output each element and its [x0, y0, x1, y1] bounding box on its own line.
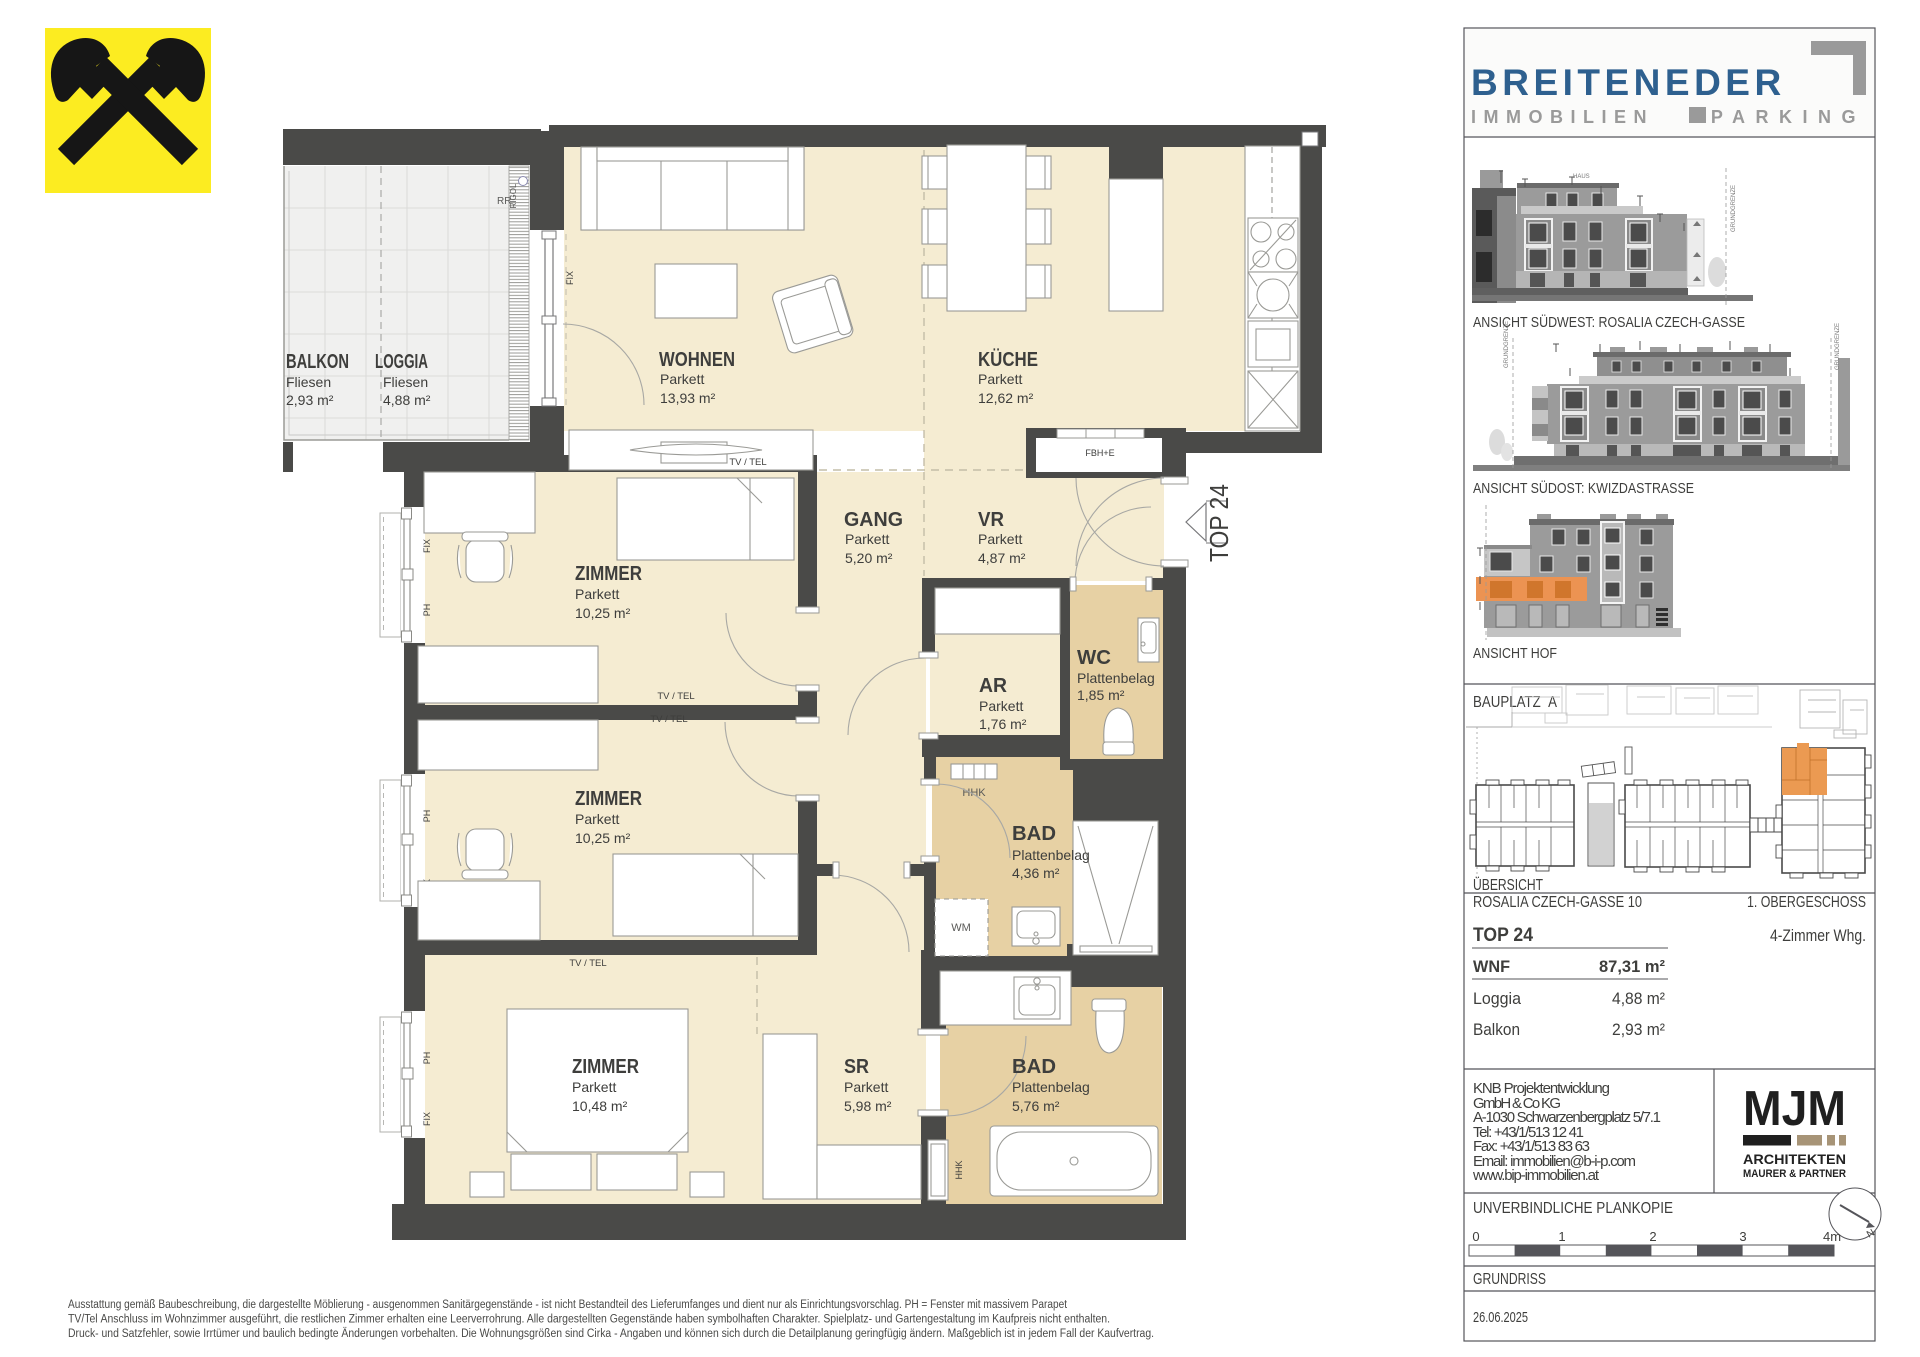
svg-text:FIX: FIX: [422, 1112, 432, 1126]
svg-text:Druck- und Satzfehler, sowie I: Druck- und Satzfehler, sowie Irrtümer un…: [68, 1328, 1154, 1340]
svg-text:5,76 m²: 5,76 m²: [1012, 1098, 1060, 1114]
svg-text:GRUNDGRENZE: GRUNDGRENZE: [1504, 321, 1510, 368]
svg-text:Plattenbelag: Plattenbelag: [1012, 1079, 1090, 1095]
svg-text:WC: WC: [1077, 647, 1111, 669]
svg-text:4m: 4m: [1823, 1229, 1841, 1244]
svg-text:TOP 24: TOP 24: [1204, 484, 1234, 562]
svg-text:ÜBERSICHT: ÜBERSICHT: [1473, 876, 1543, 894]
svg-text:ZIMMER: ZIMMER: [575, 788, 642, 810]
svg-text:Parkett: Parkett: [660, 371, 704, 387]
svg-text:GANG: GANG: [844, 509, 903, 531]
svg-text:1,85 m²: 1,85 m²: [1077, 687, 1125, 703]
svg-text:MAURER & PARTNER: MAURER & PARTNER: [1743, 1168, 1846, 1180]
svg-text:Parkett: Parkett: [845, 531, 889, 547]
svg-text:PH: PH: [422, 1052, 432, 1065]
svg-text:WNF: WNF: [1473, 957, 1510, 976]
svg-text:BREITENEDER: BREITENEDER: [1471, 62, 1786, 103]
svg-text:HAUS: HAUS: [1573, 174, 1590, 180]
svg-text:4,36 m²: 4,36 m²: [1012, 865, 1060, 881]
svg-text:TV / TEL: TV / TEL: [657, 691, 694, 702]
svg-text:BAD: BAD: [1012, 1056, 1056, 1078]
svg-text:Parkett: Parkett: [978, 531, 1022, 547]
svg-text:FBH+E: FBH+E: [1085, 448, 1114, 458]
svg-text:SR: SR: [844, 1056, 869, 1078]
svg-text:5,20 m²: 5,20 m²: [845, 550, 893, 566]
svg-text:TV / TEL: TV / TEL: [729, 457, 766, 468]
svg-text:13,93 m²: 13,93 m²: [660, 390, 716, 406]
svg-text:RR: RR: [497, 196, 511, 207]
svg-text:VR: VR: [978, 509, 1005, 531]
svg-text:3: 3: [1739, 1229, 1746, 1244]
svg-text:12,62 m²: 12,62 m²: [978, 390, 1034, 406]
svg-text:FIX: FIX: [565, 271, 575, 285]
svg-text:MJM: MJM: [1743, 1082, 1846, 1136]
svg-text:Parkett: Parkett: [978, 371, 1022, 387]
svg-text:10,48 m²: 10,48 m²: [572, 1098, 628, 1114]
svg-text:GRUNDGRENZE: GRUNDGRENZE: [1731, 185, 1737, 232]
svg-text:Plattenbelag: Plattenbelag: [1077, 670, 1155, 686]
svg-text:1. OBERGESCHOSS: 1. OBERGESCHOSS: [1747, 894, 1866, 911]
svg-text:Parkett: Parkett: [572, 1079, 616, 1095]
svg-text:PH: PH: [422, 810, 432, 823]
svg-text:ANSICHT SÜDOST: KWIZDASTRASSE: ANSICHT SÜDOST: KWIZDASTRASSE: [1473, 479, 1694, 497]
svg-text:ANSICHT SÜDWEST: ROSALIA CZECH: ANSICHT SÜDWEST: ROSALIA CZECH-GASSE: [1473, 313, 1745, 331]
svg-text:BALKON: BALKON: [286, 351, 349, 373]
svg-text:AR: AR: [979, 675, 1008, 697]
svg-text:LOGGIA: LOGGIA: [375, 351, 428, 373]
svg-text:ROSALIA CZECH-GASSE 10: ROSALIA CZECH-GASSE 10: [1473, 894, 1642, 911]
svg-text:2,93 m²: 2,93 m²: [1612, 1020, 1665, 1039]
svg-text:TV / TEL: TV / TEL: [569, 958, 606, 969]
svg-text:BAD: BAD: [1012, 823, 1056, 845]
svg-text:PARKING: PARKING: [1711, 107, 1866, 127]
svg-text:26.06.2025: 26.06.2025: [1473, 1309, 1528, 1326]
svg-text:5,98 m²: 5,98 m²: [844, 1098, 892, 1114]
svg-text:2,93 m²: 2,93 m²: [286, 392, 334, 408]
svg-text:WOHNEN: WOHNEN: [659, 349, 735, 371]
svg-text:1: 1: [1558, 1229, 1565, 1244]
svg-text:WM: WM: [951, 922, 971, 934]
svg-text:10,25 m²: 10,25 m²: [575, 830, 631, 846]
svg-text:4,88 m²: 4,88 m²: [383, 392, 431, 408]
svg-text:ARCHITEKTEN: ARCHITEKTEN: [1743, 1151, 1846, 1167]
svg-text:4,88 m²: 4,88 m²: [1612, 989, 1665, 1008]
svg-text:0: 0: [1472, 1229, 1479, 1244]
svg-text:Parkett: Parkett: [575, 811, 619, 827]
svg-text:TV/Tel Anschluss im Wohnzimmer: TV/Tel Anschluss im Wohnzimmer ausgeführ…: [68, 1314, 1110, 1326]
svg-text:Parkett: Parkett: [979, 698, 1023, 714]
svg-text:TOP 24: TOP 24: [1473, 925, 1533, 946]
svg-text:GRUNDRISS: GRUNDRISS: [1473, 1271, 1546, 1288]
svg-text:Fliesen: Fliesen: [383, 374, 428, 390]
svg-text:Plattenbelag: Plattenbelag: [1012, 847, 1090, 863]
svg-text:Loggia: Loggia: [1473, 989, 1522, 1008]
svg-text:HHK: HHK: [954, 1160, 964, 1179]
svg-text:ZIMMER: ZIMMER: [572, 1056, 639, 1078]
svg-text:10,25 m²: 10,25 m²: [575, 605, 631, 621]
svg-text:UNVERBINDLICHE PLANKOPIE: UNVERBINDLICHE PLANKOPIE: [1473, 1200, 1673, 1217]
svg-text:ANSICHT HOF: ANSICHT HOF: [1473, 646, 1557, 662]
svg-text:FIX: FIX: [422, 539, 432, 553]
svg-text:HHK: HHK: [962, 787, 986, 799]
svg-text:Ausstattung gemäß Baubeschreib: Ausstattung gemäß Baubeschreibung, die d…: [68, 1299, 1068, 1311]
svg-text:www.bip-immobilien.at: www.bip-immobilien.at: [1472, 1167, 1600, 1184]
svg-text:IMMOBILIEN: IMMOBILIEN: [1471, 107, 1654, 127]
svg-text:Balkon: Balkon: [1473, 1020, 1520, 1039]
svg-text:PH: PH: [422, 604, 432, 617]
svg-text:Parkett: Parkett: [844, 1079, 888, 1095]
svg-text:87,31 m²: 87,31 m²: [1599, 957, 1665, 976]
svg-text:4-Zimmer Whg.: 4-Zimmer Whg.: [1770, 926, 1866, 945]
svg-text:KÜCHE: KÜCHE: [978, 348, 1038, 371]
svg-text:2: 2: [1649, 1229, 1656, 1244]
svg-text:1,76 m²: 1,76 m²: [979, 716, 1027, 732]
svg-text:Parkett: Parkett: [575, 586, 619, 602]
svg-text:4,87 m²: 4,87 m²: [978, 550, 1026, 566]
svg-text:GRUNDGRENZE: GRUNDGRENZE: [1835, 323, 1841, 370]
svg-text:ZIMMER: ZIMMER: [575, 563, 642, 585]
svg-text:Fliesen: Fliesen: [286, 374, 331, 390]
svg-text:TV / TEL: TV / TEL: [650, 714, 687, 725]
